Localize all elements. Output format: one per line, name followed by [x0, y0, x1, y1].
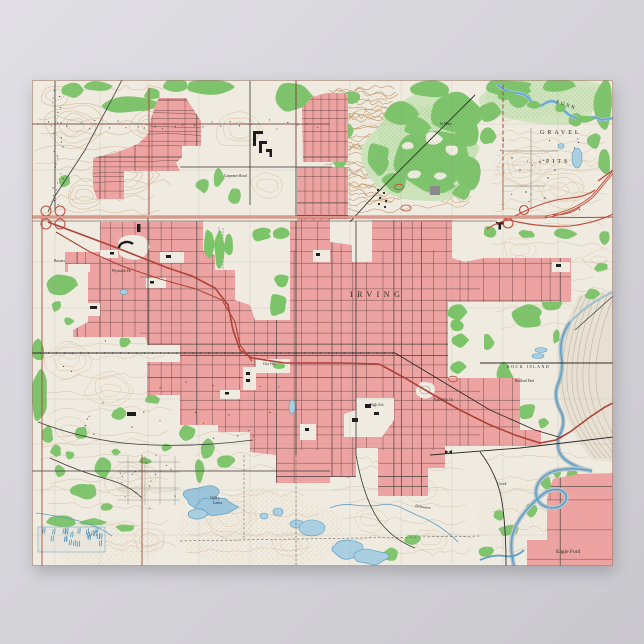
svg-text:East Hills Ch: East Hills Ch [434, 398, 453, 402]
svg-text:PITS: PITS [546, 159, 570, 165]
svg-text:Plymouth Pk: Plymouth Pk [112, 269, 131, 273]
svg-text:Lakes: Lakes [212, 500, 223, 505]
svg-text:High Sch: High Sch [370, 403, 384, 407]
svg-text:Creek: Creek [497, 481, 507, 486]
svg-text:ROCK ISLAND: ROCK ISLAND [507, 364, 550, 369]
svg-text:IRVING: IRVING [350, 290, 404, 299]
svg-text:Bowers: Bowers [54, 259, 66, 263]
svg-text:Carpenter Road: Carpenter Road [224, 174, 247, 178]
svg-text:GRAVEL: GRAVEL [540, 130, 582, 136]
svg-text:City Hall: City Hall [263, 362, 276, 366]
svg-text:Eagle Ford: Eagle Ford [556, 549, 581, 555]
svg-text:St Mary: St Mary [440, 122, 452, 126]
svg-text:Bedford Park: Bedford Park [515, 379, 534, 383]
